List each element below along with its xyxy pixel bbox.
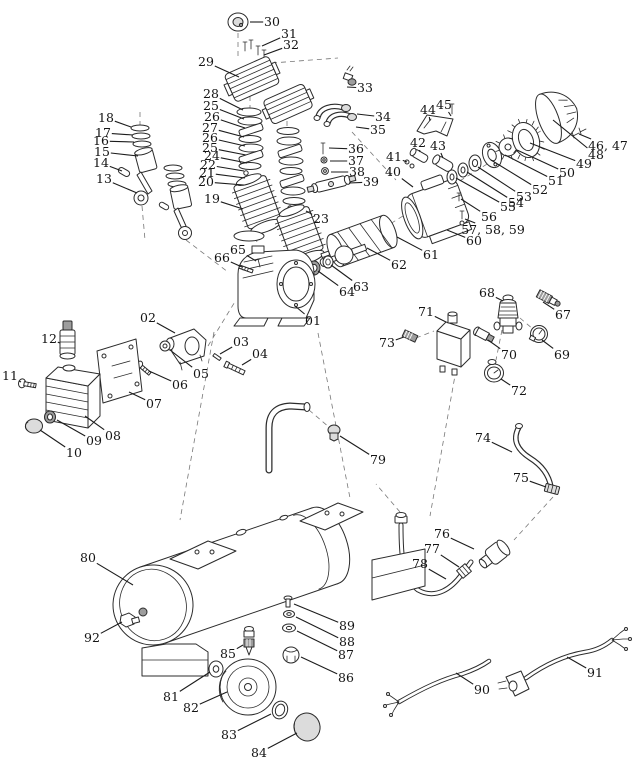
part-label-49: 49 <box>576 156 592 171</box>
part-label-55: 55 <box>500 199 516 214</box>
part-leader-64 <box>318 271 338 286</box>
part-leader-86 <box>301 657 337 674</box>
part-label-23: 23 <box>313 211 329 226</box>
part-label-40: 40 <box>385 164 401 179</box>
part-label-89: 89 <box>339 618 355 633</box>
part-leader-33 <box>347 87 356 88</box>
part-label-08: 08 <box>105 428 121 443</box>
part-label-81: 81 <box>163 689 179 704</box>
part-leader-51 <box>505 155 547 177</box>
part-leader-34 <box>357 114 374 116</box>
part-label-85: 85 <box>220 646 236 661</box>
part-label-51: 51 <box>548 173 564 188</box>
part-label-07: 07 <box>146 396 162 411</box>
part-leader-36 <box>329 148 347 149</box>
part-leader-07 <box>129 392 145 400</box>
part-cylinder-flange <box>234 231 264 241</box>
part-leader-04 <box>242 359 251 365</box>
part-label-68: 68 <box>479 285 495 300</box>
part-label-43: 43 <box>430 138 446 153</box>
part-label-63: 63 <box>353 279 369 294</box>
part-13-18-piston-assembly <box>117 125 157 205</box>
part-leader-06 <box>149 371 171 381</box>
part-86-axle-clip <box>283 647 299 663</box>
part-33-elbow-fitting <box>343 66 356 85</box>
part-83-ring <box>270 699 290 721</box>
part-label-02: 02 <box>140 310 156 325</box>
part-label-60: 60 <box>466 233 482 248</box>
part-label-35: 35 <box>370 122 386 137</box>
part-leader-16 <box>110 141 134 142</box>
part-leader-35 <box>356 127 369 129</box>
part-31-32-screws <box>243 40 266 59</box>
part-label-82: 82 <box>183 700 199 715</box>
part-72-gauge <box>485 360 504 383</box>
part-leader-75 <box>530 481 546 487</box>
part-76-check-valve <box>475 538 512 572</box>
part-leader-03 <box>220 347 232 354</box>
part-01-crankcase <box>234 246 315 326</box>
part-05-washer <box>160 341 170 351</box>
part-leader-21 <box>216 174 245 178</box>
part-leader-84 <box>268 733 297 748</box>
part-label-76: 76 <box>434 526 450 541</box>
part-label-06: 06 <box>172 377 188 392</box>
part-label-01: 01 <box>305 313 321 328</box>
part-19-cylinder <box>229 169 287 238</box>
part-leader-85 <box>237 645 243 649</box>
part-label-84: 84 <box>251 745 267 760</box>
part-71-pressure-switch <box>437 312 470 375</box>
part-label-20: 20 <box>198 174 214 189</box>
part-label-80: 80 <box>80 550 96 565</box>
part-label-44: 44 <box>420 102 436 117</box>
part-label-90: 90 <box>474 682 490 697</box>
part-leader-68 <box>496 297 503 301</box>
part-leader-78 <box>429 569 446 579</box>
part-label-52: 52 <box>532 182 548 197</box>
part-leader-70 <box>488 340 500 349</box>
part-label-70: 70 <box>501 347 517 362</box>
part-label-75: 75 <box>513 470 529 485</box>
part-label-88: 88 <box>339 634 355 649</box>
part-label-61: 61 <box>423 247 439 262</box>
part-68-regulator <box>494 295 522 333</box>
part-leader-18 <box>115 121 131 127</box>
part-leader-63 <box>331 265 352 281</box>
part-leader-79 <box>340 436 369 454</box>
part-55-washer <box>447 170 457 184</box>
part-leader-53 <box>478 167 515 191</box>
part-leader-39 <box>349 182 362 183</box>
part-label-05: 05 <box>193 366 209 381</box>
part-piston-assembly-2 <box>158 165 191 240</box>
part-label-79: 79 <box>370 452 386 467</box>
part-label-42: 42 <box>410 135 426 150</box>
part-label-71: 71 <box>418 304 434 319</box>
part-09-cap <box>45 411 56 423</box>
part-69-gauge <box>529 326 547 343</box>
part-leader-92 <box>101 622 122 633</box>
part-label-33: 33 <box>357 80 373 95</box>
part-81-washer <box>209 661 223 677</box>
part-leader-73 <box>396 337 404 340</box>
part-70-fitting <box>472 326 495 344</box>
part-label-62: 62 <box>391 257 407 272</box>
part-leader-17 <box>112 134 133 135</box>
part-leader-54 <box>467 172 507 197</box>
part-label-65: 65 <box>230 242 246 257</box>
part-leader-52 <box>491 160 531 185</box>
part-label-86: 86 <box>338 670 354 685</box>
part-label-10: 10 <box>66 445 82 460</box>
part-label-73: 73 <box>379 335 395 350</box>
part-label-74: 74 <box>475 430 491 445</box>
part-label-72: 72 <box>511 383 527 398</box>
part-label-13: 13 <box>96 171 112 186</box>
part-leader-32 <box>264 48 282 55</box>
part-valve-plate-stack-b <box>277 128 305 217</box>
part-leader-91 <box>567 657 586 668</box>
part-30-cap <box>228 13 248 31</box>
part-handle-tube <box>269 403 310 471</box>
part-leader-10 <box>40 430 65 447</box>
part-54-washer <box>458 163 468 177</box>
part-10-wing-nut <box>25 419 42 433</box>
part-leader-12 <box>58 342 60 343</box>
part-leader-76 <box>451 538 474 549</box>
part-53-bearing <box>469 155 481 171</box>
part-leader-44 <box>429 117 430 121</box>
part-label-66: 66 <box>214 250 230 265</box>
part-label-39: 39 <box>363 174 379 189</box>
part-leader-83 <box>238 714 271 731</box>
part-85-drain-valve <box>244 627 254 656</box>
part-12-filter-cartridge <box>60 321 75 359</box>
part-label-32: 32 <box>283 37 299 52</box>
part-36-38-fasteners <box>321 143 328 174</box>
part-label-03: 03 <box>233 334 249 349</box>
part-leader-74 <box>492 442 512 452</box>
part-leader-15 <box>111 153 138 156</box>
part-leader-40 <box>402 179 413 187</box>
part-label-64: 64 <box>339 284 355 299</box>
part-leader-71 <box>435 316 446 322</box>
part-label-09: 09 <box>86 433 102 448</box>
part-04-bolt <box>224 361 246 375</box>
part-84-hub-cap <box>291 710 323 744</box>
exploded-parts-diagram: 3031322933282526272625242221201918171615… <box>0 0 640 768</box>
part-leader-77 <box>441 555 459 567</box>
part-leader-31 <box>262 38 280 46</box>
part-label-19: 19 <box>204 191 220 206</box>
part-label-87: 87 <box>338 647 354 662</box>
part-label-04: 04 <box>252 346 268 361</box>
part-tank-foot-left <box>142 644 208 676</box>
part-07-gasket-plate <box>97 339 142 403</box>
part-leader-02 <box>157 323 175 333</box>
part-91-power-cord <box>498 628 632 697</box>
part-label-12: 12 <box>41 331 57 346</box>
part-tank-drain-port <box>139 608 147 616</box>
part-label-67: 67 <box>555 307 571 322</box>
part-label-77: 77 <box>424 541 440 556</box>
part-leader-69 <box>542 340 553 348</box>
part-02-intake-elbow <box>166 329 206 370</box>
part-leader-45 <box>449 112 452 116</box>
diagram-canvas: 3031322933282526272625242221201918171615… <box>0 0 640 768</box>
part-11-bolt <box>18 378 37 390</box>
part-79-plug <box>328 425 340 441</box>
part-34-35-outlet-pipes <box>314 105 357 127</box>
part-label-30: 30 <box>264 14 280 29</box>
part-label-41: 41 <box>386 149 402 164</box>
part-87-washer <box>283 624 296 632</box>
part-label-29: 29 <box>198 54 214 69</box>
part-leader-13 <box>113 183 137 193</box>
part-73-fitting <box>402 330 418 342</box>
part-label-91: 91 <box>587 665 603 680</box>
part-82-wheel <box>219 659 276 715</box>
part-leader-72 <box>501 379 510 385</box>
part-88-washer <box>284 611 295 618</box>
part-03-pin <box>213 353 221 360</box>
part-label-14: 14 <box>93 155 109 170</box>
part-label-83: 83 <box>221 727 237 742</box>
part-75-fitting <box>544 483 560 494</box>
part-label-92: 92 <box>84 630 100 645</box>
part-label-18: 18 <box>98 110 114 125</box>
part-label-45: 45 <box>436 97 452 112</box>
part-label-69: 69 <box>554 347 570 362</box>
part-label-78: 78 <box>412 556 428 571</box>
part-label-11: 11 <box>2 368 18 383</box>
